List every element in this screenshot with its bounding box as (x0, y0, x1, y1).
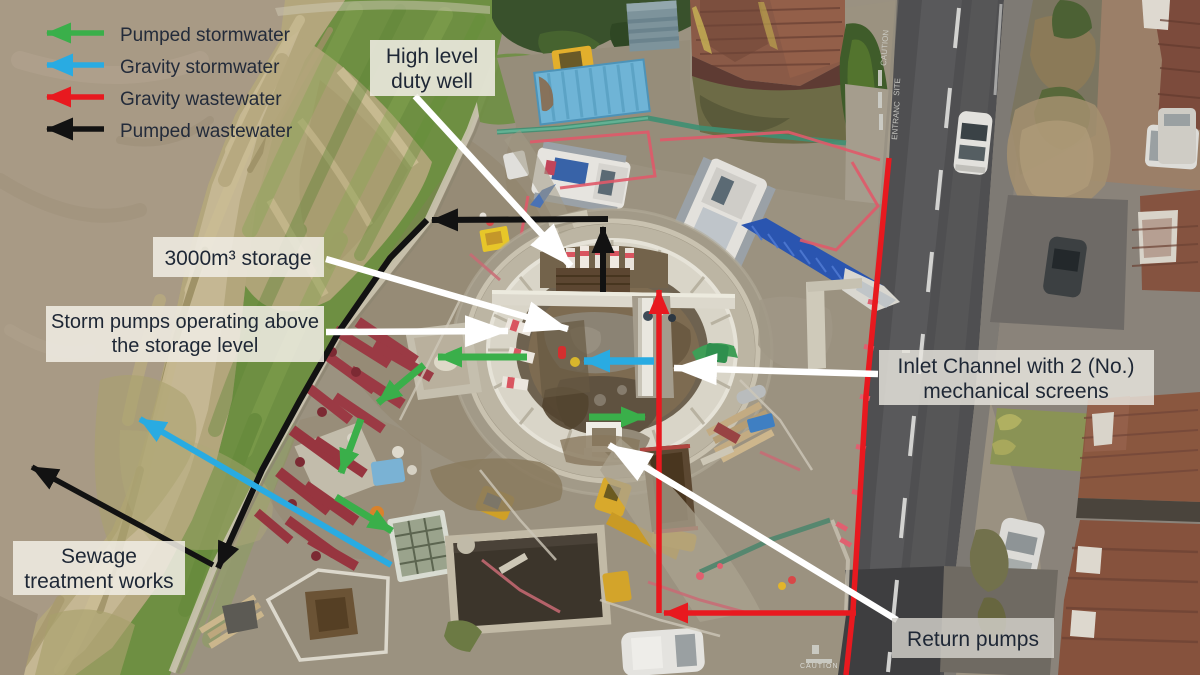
svg-text:3000m³ storage: 3000m³ storage (164, 247, 311, 270)
svg-text:CAUTION: CAUTION (800, 663, 839, 670)
svg-text:Pumped wastewater: Pumped wastewater (120, 121, 293, 142)
svg-text:Gravity stormwater: Gravity stormwater (120, 57, 280, 78)
svg-text:duty well: duty well (391, 70, 473, 93)
svg-text:mechanical screens: mechanical screens (923, 380, 1109, 403)
svg-text:Gravity wastewater: Gravity wastewater (120, 89, 282, 110)
svg-text:Return pumps: Return pumps (907, 628, 1039, 651)
svg-text:Pumped stormwater: Pumped stormwater (120, 25, 291, 46)
svg-text:Sewage: Sewage (61, 545, 137, 568)
svg-text:SITE: SITE (892, 78, 902, 96)
svg-text:treatment works: treatment works (24, 570, 173, 593)
svg-text:Storm pumps operating above: Storm pumps operating above (51, 311, 319, 333)
svg-text:the storage level: the storage level (112, 335, 259, 357)
svg-text:High level: High level (386, 45, 478, 68)
svg-text:Inlet Channel with 2 (No.): Inlet Channel with 2 (No.) (898, 355, 1135, 378)
